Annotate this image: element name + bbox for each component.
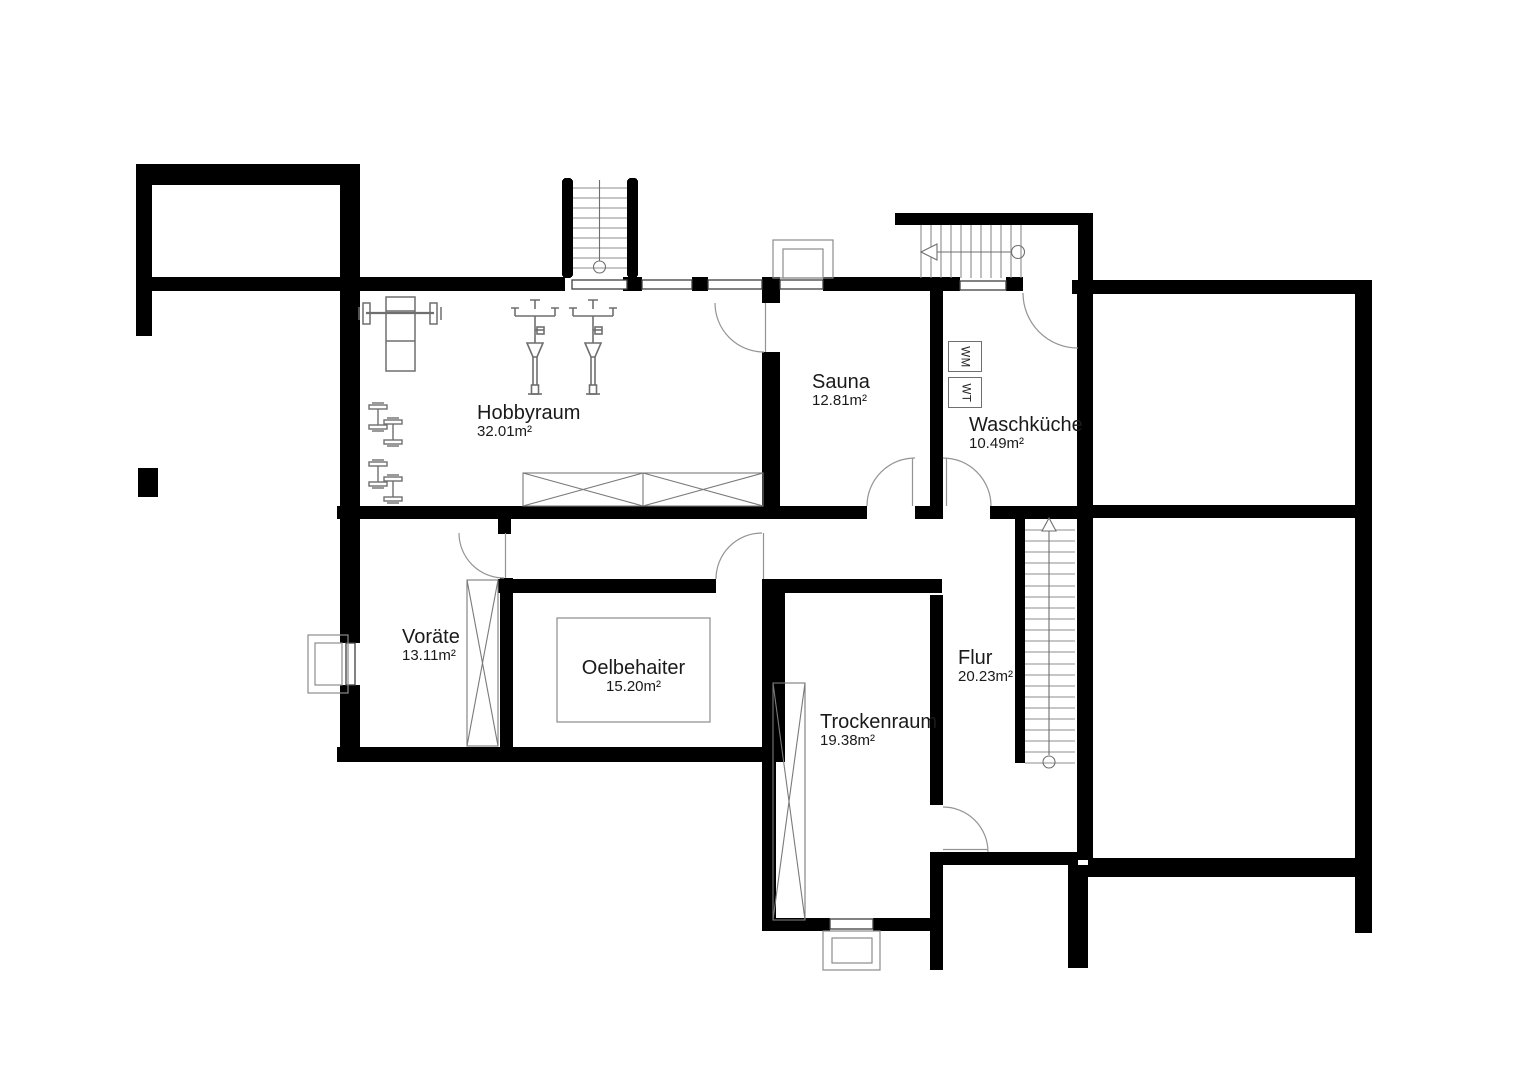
shelf-voraete [467,580,498,746]
furniture [359,297,805,920]
room-area: 19.38m² [820,733,937,750]
room-name: Hobbyraum [477,402,580,424]
room-area: 12.81m² [812,393,870,410]
room-name: Sauna [812,371,870,393]
staircase-exterior-top [573,180,627,273]
window-stair-entry [572,280,627,289]
room-area: 20.23m² [958,669,1013,686]
bench-press-icon [359,297,441,371]
exercise-bike-icon [569,300,617,394]
exercise-bike-icon [511,300,559,394]
wall-center-vertical [1077,293,1093,860]
room-name: Waschküche [969,414,1083,436]
dryer-box: WT [948,377,982,408]
dumbbell-icon [369,460,387,488]
wall-top-main [360,277,565,291]
light-wells [308,240,880,970]
dumbbell-icon [384,418,402,446]
door-hobbyraum-sauna [715,303,766,352]
windows [346,280,1006,929]
door-waschkueche-entry [1023,293,1078,348]
room-label-flur: Flur 20.23m² [958,647,1013,686]
stair-direction-arrow [1042,518,1056,531]
window-sauna [780,280,823,289]
door-waschkueche-flur [943,458,991,506]
wall-right-middle [1088,505,1372,518]
light-well-trockenraum [823,931,880,970]
shelf-hobbyraum [523,473,763,506]
dumbbell-icon [369,403,387,431]
wall-right-exterior [1355,280,1372,933]
room-area: 15.20m² [557,679,710,696]
window-voraete [346,643,355,685]
light-well-voraete [308,635,348,693]
wall-bottom-left [337,747,785,762]
window-hobbyraum-1 [642,280,692,289]
room-label-hobbyraum: Hobbyraum 32.01m² [477,402,580,441]
pillar [138,468,158,497]
room-name: Voräte [402,626,460,648]
wall-stair-jamb-left [562,178,573,278]
room-name: Flur [958,647,1013,669]
room-label-sauna: Sauna 12.81m² [812,371,870,410]
door-sauna-flur [867,458,915,506]
door-trockenraum [943,807,988,852]
door-voraete [459,533,506,578]
window-hobbyraum-2 [708,280,762,289]
floor-plan: Hobbyraum 32.01m² Sauna 12.81m² Waschküc… [0,0,1528,1080]
room-label-oelbehaiter: Oelbehaiter 15.20m² [557,657,710,696]
wall-stair-jamb-right [627,178,638,278]
room-area: 10.49m² [969,436,1083,453]
washing-machine-box: WM [948,341,982,372]
wall-topright-top [1072,280,1372,294]
room-name: Trockenraum [820,711,937,733]
shelf-trockenraum [773,683,805,920]
wall-annex-bottom [136,277,365,291]
floor-plan-drawing [0,0,1528,1080]
window-trockenraum [830,919,873,929]
window-waschkueche [960,281,1006,290]
stair-direction-arrow [921,244,937,260]
wall-left-exterior [340,164,360,643]
dryer-label: WT [959,383,971,402]
light-well-sauna [773,240,833,278]
room-area: 13.11m² [402,648,460,665]
room-name: Oelbehaiter [557,657,710,679]
room-label-waschkueche: Waschküche 10.49m² [969,414,1083,453]
wall-annex-top [136,164,360,185]
room-area: 32.01m² [477,424,580,441]
staircase-entry-upper-right [921,225,1025,278]
room-label-voraete: Voräte 13.11m² [402,626,460,665]
washing-machine-label: WM [959,346,971,367]
room-label-trockenraum: Trockenraum 19.38m² [820,711,937,750]
staircase-flur [1025,518,1075,768]
dumbbell-icon [384,475,402,503]
wall-bottomright [1088,858,1372,877]
wall-annex-left [136,164,152,336]
wall-enclosure-top [895,213,1093,225]
door-oelbehaiter [716,533,764,579]
